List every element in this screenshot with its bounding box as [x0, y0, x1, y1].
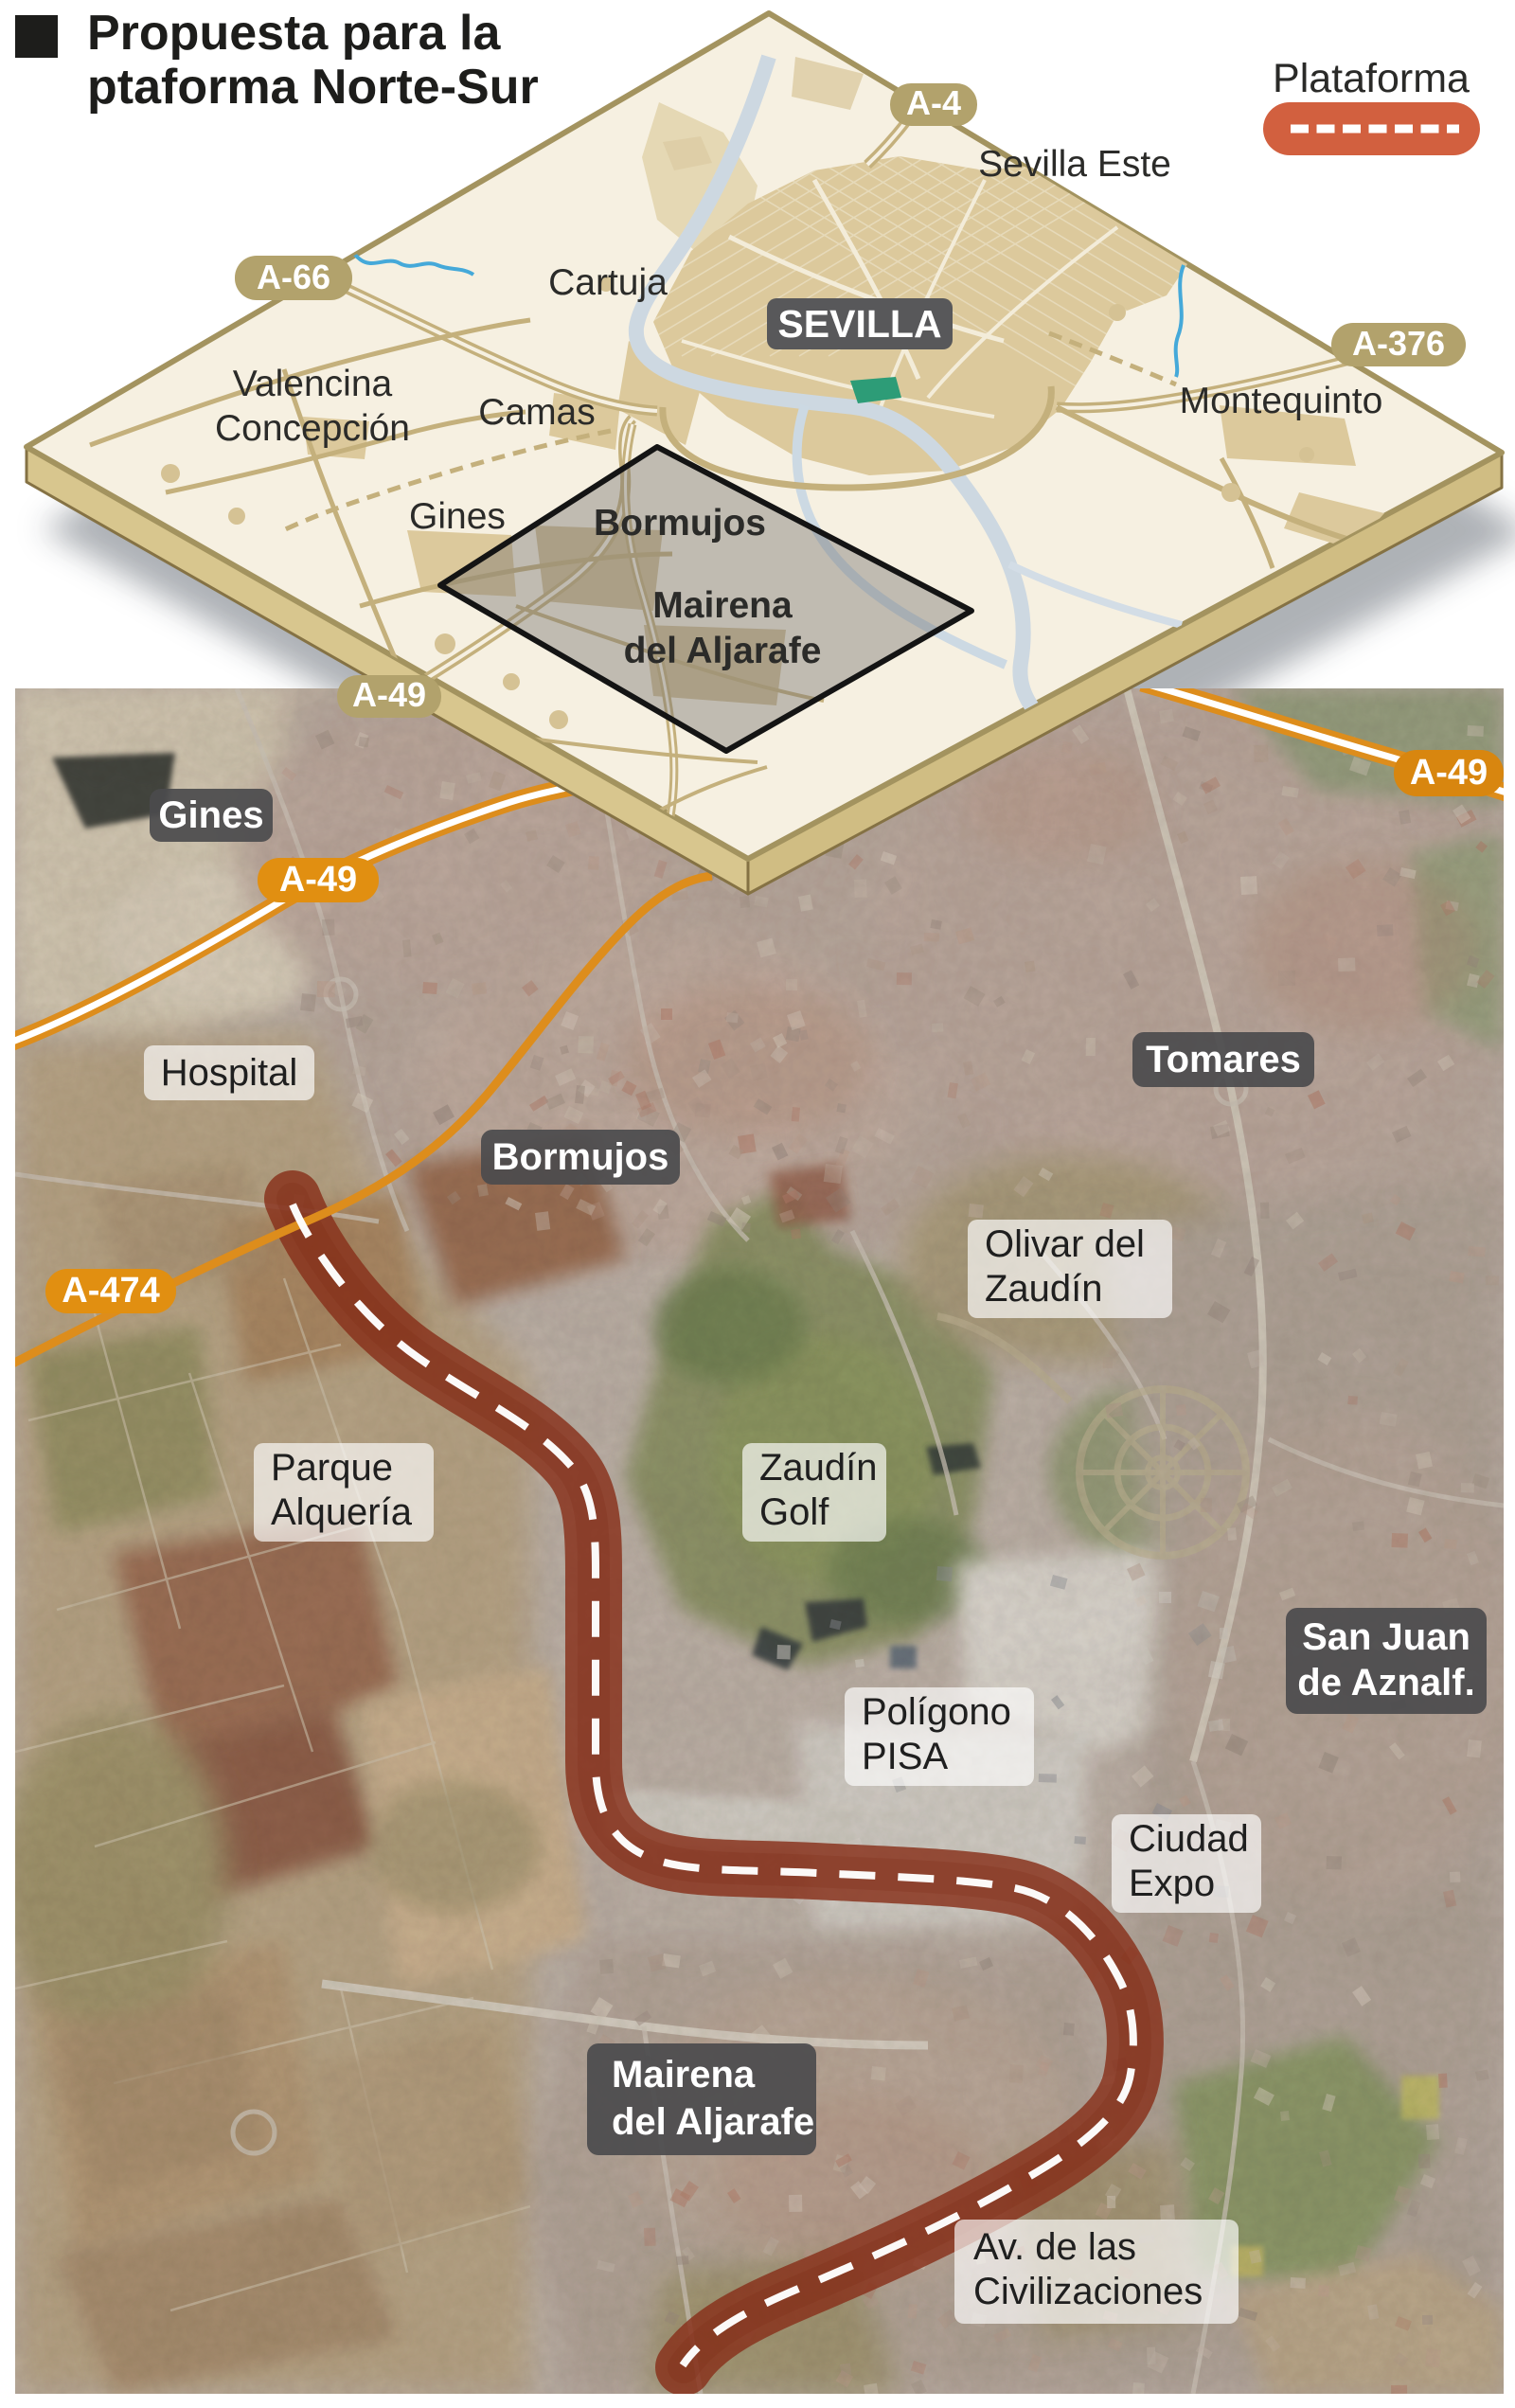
svg-text:Expo: Expo: [1129, 1863, 1215, 1904]
svg-text:A-474: A-474: [62, 1271, 160, 1311]
svg-text:Hospital: Hospital: [161, 1052, 298, 1094]
svg-text:Mairena: Mairena: [612, 2054, 756, 2096]
svg-text:Parque: Parque: [271, 1447, 393, 1489]
svg-text:A-49: A-49: [279, 860, 357, 900]
svg-text:Camas: Camas: [478, 392, 596, 433]
svg-text:A-4: A-4: [906, 83, 961, 122]
svg-text:Zaudín: Zaudín: [985, 1268, 1103, 1310]
svg-text:Montequinto: Montequinto: [1180, 381, 1383, 421]
svg-text:Bormujos: Bormujos: [492, 1136, 669, 1178]
svg-text:Gines: Gines: [409, 496, 506, 537]
svg-text:Golf: Golf: [759, 1491, 829, 1533]
svg-text:Civilizaciones: Civilizaciones: [973, 2271, 1203, 2312]
svg-text:Plataforma: Plataforma: [1273, 56, 1470, 101]
svg-text:A-49: A-49: [352, 675, 426, 714]
svg-text:Mairena: Mairena: [652, 585, 793, 626]
svg-text:Valencina: Valencina: [233, 364, 393, 404]
svg-text:Sevilla Este: Sevilla Este: [978, 144, 1171, 185]
svg-text:Concepción: Concepción: [215, 408, 410, 449]
svg-text:Alquería: Alquería: [271, 1491, 413, 1533]
svg-text:Zaudín: Zaudín: [759, 1447, 878, 1489]
svg-text:Cartuja: Cartuja: [548, 262, 668, 303]
svg-text:Av. de las: Av. de las: [973, 2226, 1136, 2268]
svg-text:de Aznalf.: de Aznalf.: [1297, 1662, 1474, 1703]
svg-text:A-49: A-49: [1410, 753, 1488, 793]
svg-text:Bormujos: Bormujos: [594, 503, 766, 544]
svg-text:Olivar del: Olivar del: [985, 1223, 1145, 1265]
svg-text:SEVILLA: SEVILLA: [777, 302, 941, 346]
svg-text:Propuesta para la: Propuesta para la: [87, 6, 501, 61]
svg-text:A-376: A-376: [1352, 324, 1445, 363]
svg-text:del Aljarafe: del Aljarafe: [612, 2101, 814, 2143]
svg-text:Tomares: Tomares: [1146, 1039, 1301, 1080]
svg-text:Ciudad: Ciudad: [1129, 1818, 1249, 1860]
svg-text:A-66: A-66: [257, 258, 330, 296]
svg-text:del Aljarafe: del Aljarafe: [624, 631, 822, 671]
svg-text:San Juan: San Juan: [1302, 1616, 1470, 1658]
svg-text:Gines: Gines: [158, 794, 263, 836]
svg-text:PISA: PISA: [862, 1736, 948, 1777]
svg-text:Polígono: Polígono: [862, 1691, 1011, 1733]
svg-text:ptaforma Norte-Sur: ptaforma Norte-Sur: [87, 60, 539, 115]
